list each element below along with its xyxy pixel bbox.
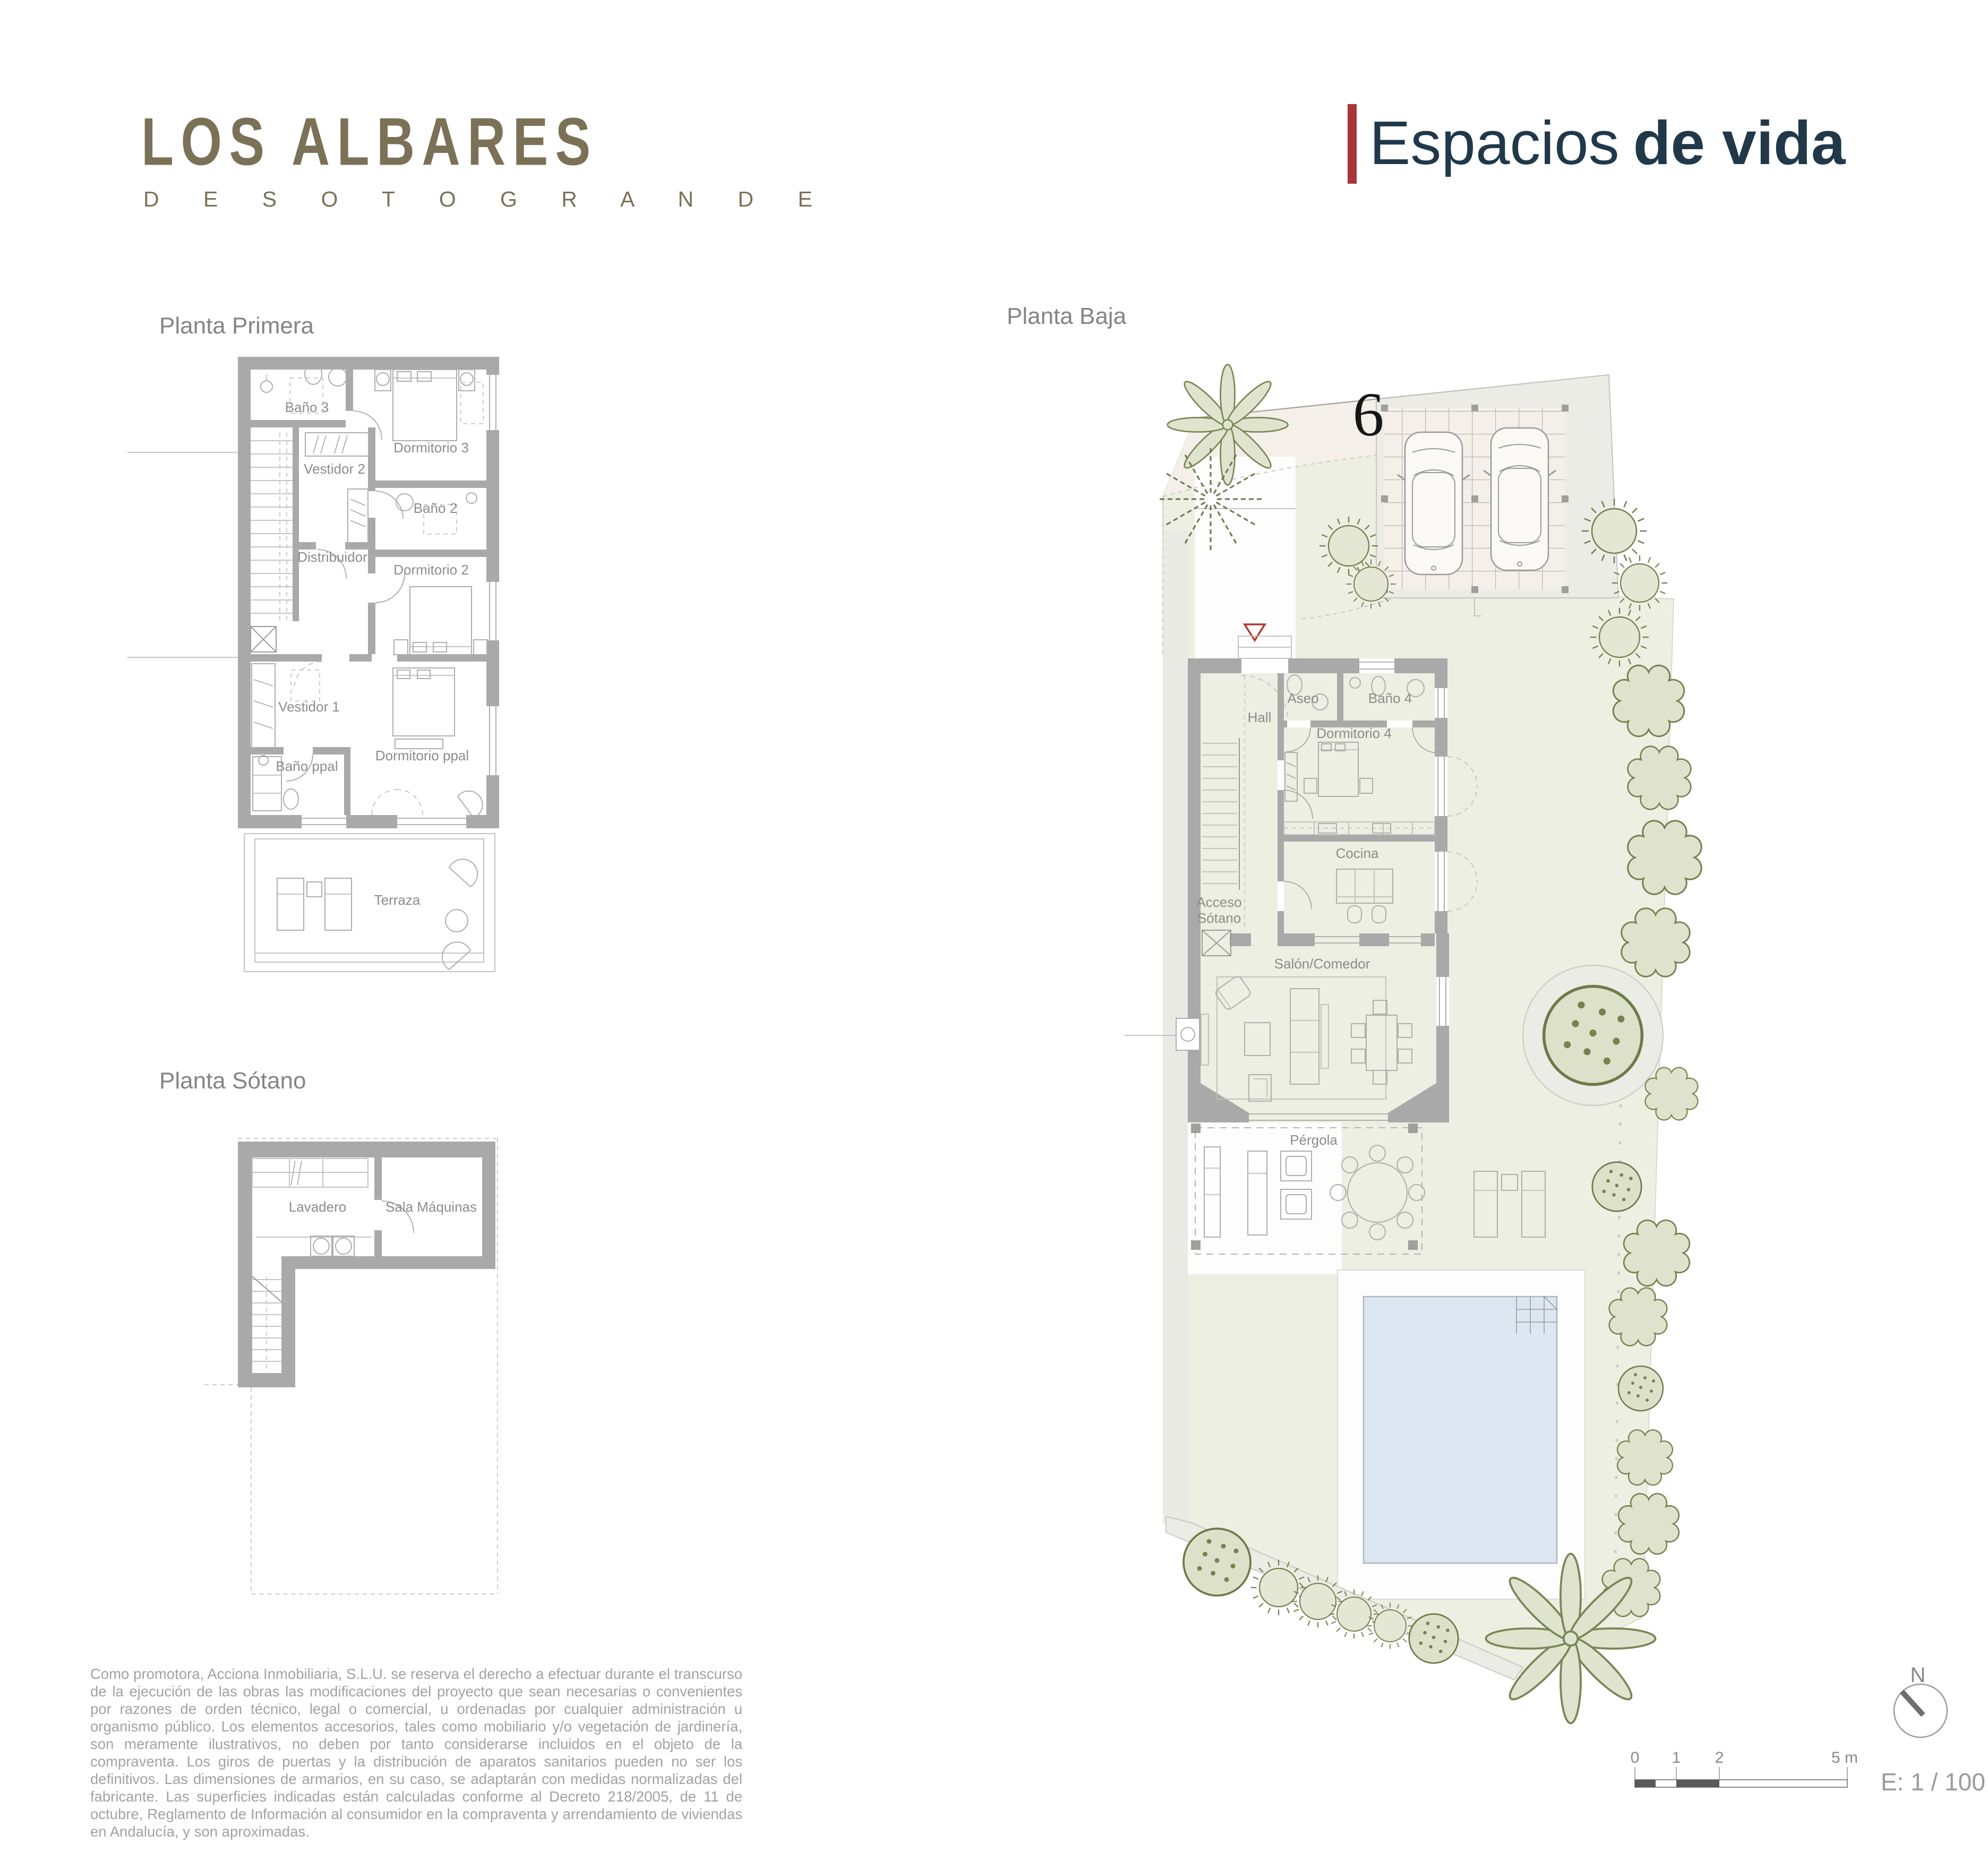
palm-tree-top: [1168, 365, 1288, 485]
sotano-stairs: [252, 1276, 281, 1371]
room-label-bano-ppal: Baño ppal: [276, 758, 338, 774]
room-label-vestidor1: Vestidor 1: [278, 699, 340, 715]
scale-tick-0: 0: [1631, 1749, 1640, 1766]
scale-tick-1: 1: [1672, 1749, 1681, 1766]
palm-tree-bottom: [1486, 1554, 1655, 1723]
room-label-dormitorio3: Dormitorio 3: [393, 440, 469, 456]
room-label-salon: Salón/Comedor: [1274, 956, 1370, 972]
primera-plan: Baño 3 Dormitorio 3 Vestidor 2 Baño 2 Di…: [127, 357, 499, 972]
room-label-terraza: Terraza: [374, 892, 421, 908]
parking-area: [1376, 375, 1618, 616]
room-label-distribuidor: Distribuidor: [297, 549, 367, 565]
room-label-dormitorio2: Dormitorio 2: [393, 562, 469, 578]
room-label-bano3: Baño 3: [285, 399, 329, 415]
sotano-title: Planta Sótano: [159, 1068, 306, 1094]
room-label-dormitorio4: Dormitorio 4: [1316, 725, 1392, 741]
north-label: N: [1910, 1663, 1926, 1687]
room-label-pergola: Pérgola: [1290, 1132, 1338, 1148]
baja-title: Planta Baja: [1007, 303, 1127, 329]
ringed-tree: [1523, 965, 1663, 1105]
room-label-lavadero: Lavadero: [289, 1199, 346, 1215]
room-label-cocina: Cocina: [1336, 845, 1379, 861]
room-label-hall: Hall: [1248, 709, 1272, 725]
car-1: [1398, 432, 1470, 574]
room-label-vestidor2: Vestidor 2: [304, 461, 365, 477]
scale-tick-2: 2: [1715, 1749, 1724, 1766]
primera-terrace: [244, 834, 495, 972]
pool: [1364, 1297, 1557, 1563]
legend: N 0 1 2 5 m E: 1 / 100: [1631, 1663, 1985, 1796]
room-label-acceso-1: Acceso: [1196, 894, 1241, 910]
primera-stairs: [251, 433, 293, 652]
scale-ratio: E: 1 / 100: [1881, 1768, 1985, 1796]
legal-disclaimer: Como promotora, Acciona Inmobiliaria, S.…: [90, 1665, 742, 1840]
primera-title: Planta Primera: [159, 313, 314, 339]
sotano-partitions: [374, 1157, 382, 1256]
room-label-dormitorio-ppal: Dormitorio ppal: [375, 748, 469, 764]
room-label-sala-maquinas: Sala Máquinas: [385, 1199, 477, 1215]
room-label-aseo: Aseo: [1287, 690, 1318, 706]
room-label-acceso-2: Sótano: [1197, 910, 1241, 926]
room-label-bano4: Baño 4: [1368, 690, 1412, 706]
plot-number: 6: [1353, 380, 1384, 449]
floorplan-canvas: Planta Primera Planta Sótano Planta Baja: [0, 0, 1988, 1861]
baja-plan: 6: [1125, 365, 1701, 1723]
sotano-plan: Lavadero Sala Máquinas: [204, 1138, 498, 1594]
scale-tick-5m: 5 m: [1831, 1749, 1858, 1766]
north-compass-icon: N: [1894, 1663, 1947, 1737]
scale-bar: 0 1 2 5 m: [1631, 1749, 1858, 1787]
entrance-walk: [1195, 457, 1296, 659]
room-label-bano2: Baño 2: [414, 500, 457, 516]
primera-door-gaps: [284, 491, 397, 754]
car-2: [1484, 428, 1556, 570]
